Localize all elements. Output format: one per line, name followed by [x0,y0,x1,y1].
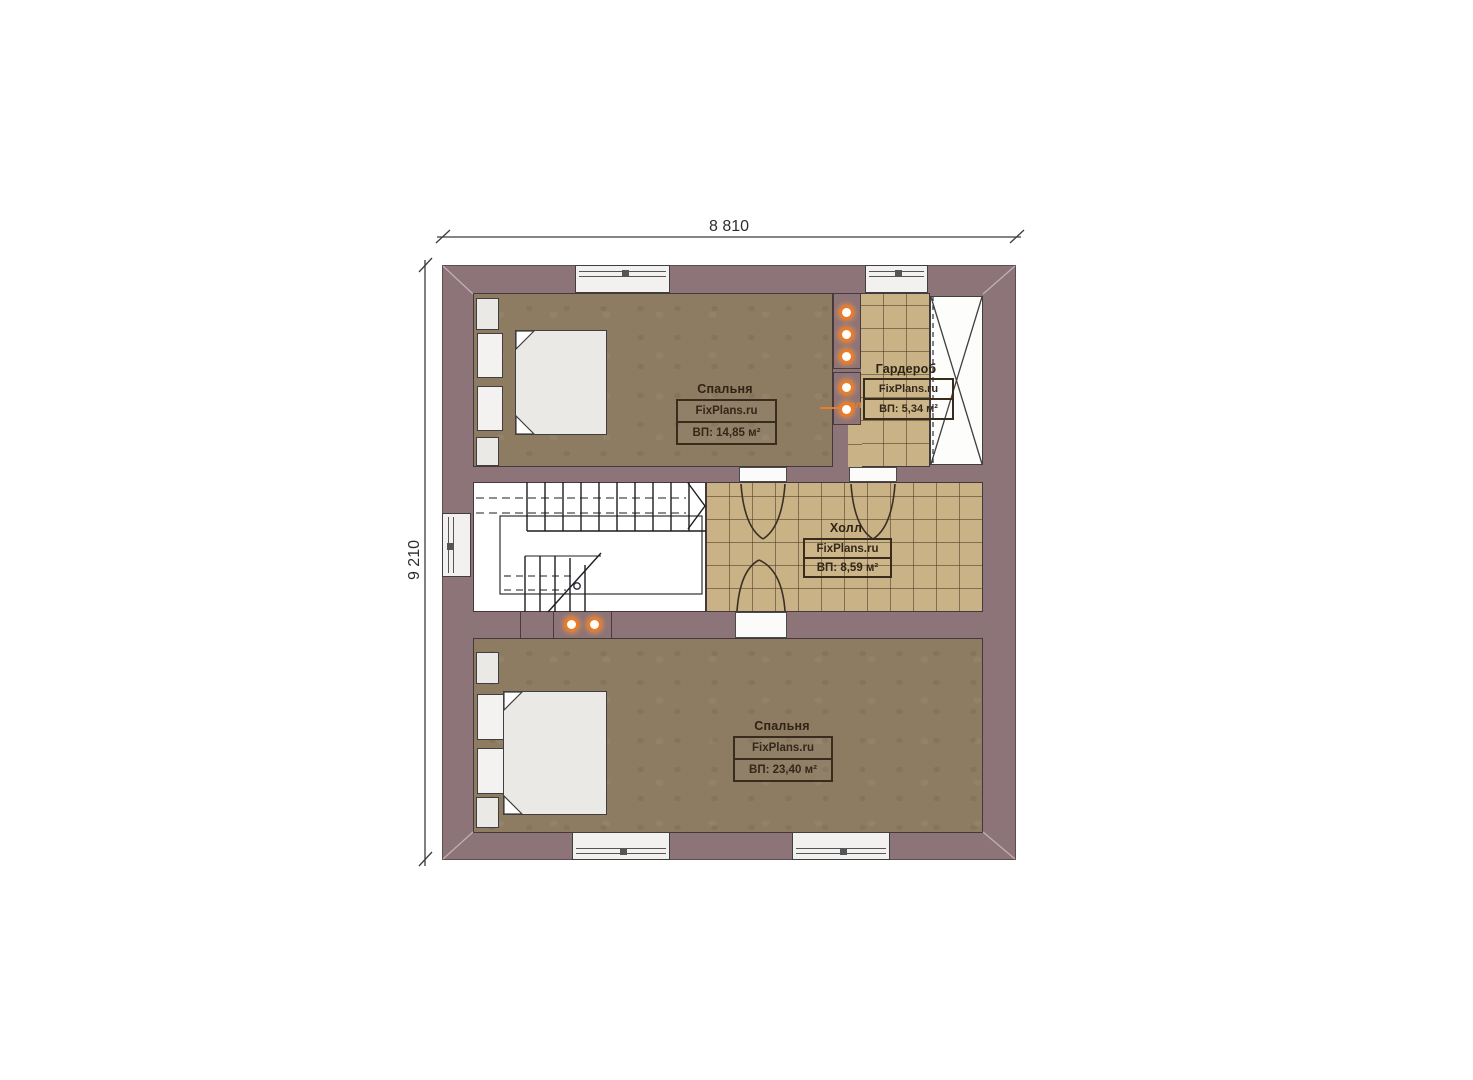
stairwell-floor [473,482,706,612]
brand-label: FixPlans.ru [865,380,952,400]
door-threshold [735,612,787,638]
electrical-marker: эл [850,400,862,411]
room-name-bedroom-top: Спальня [697,382,752,396]
nightstand [476,652,499,684]
pillow [477,333,503,378]
area-label: ВП: 5,34 м² [865,400,952,418]
bed [515,330,607,435]
room-name-hall: Холл [830,521,862,535]
area-label: ВП: 8,59 м² [805,559,890,576]
pillow [477,694,504,740]
window [442,513,471,577]
wall-joint [520,612,521,638]
vent-circle [839,349,854,364]
room-label-bedroom-bottom: FixPlans.ru ВП: 23,40 м² [733,736,833,782]
vent-circle [587,617,602,632]
window [865,265,928,293]
floor-plan-canvas: 8 810 9 210 эл [0,0,1473,1080]
room-label-wardrobe: FixPlans.ru ВП: 5,34 м² [863,378,954,420]
brand-label: FixPlans.ru [735,738,831,760]
nightstand [476,797,499,828]
window [792,832,890,860]
door-threshold [739,467,787,482]
nightstand [476,437,499,466]
room-wardrobe-floor-patch [848,425,862,467]
door-threshold [849,467,897,482]
dimension-width-label: 8 810 [442,218,1016,236]
brand-label: FixPlans.ru [678,401,775,423]
bed [503,691,607,815]
dimension-height-label: 9 210 [406,530,422,590]
brand-label: FixPlans.ru [805,540,890,559]
room-name-wardrobe: Гардероб [876,362,937,376]
vent-block-middle [553,612,612,638]
nightstand [476,298,499,330]
room-label-bedroom-top: FixPlans.ru ВП: 14,85 м² [676,399,777,445]
window [572,832,670,860]
area-label: ВП: 23,40 м² [735,760,831,780]
vent-circle [839,327,854,342]
electrical-lead-line [820,407,840,409]
window [575,265,670,293]
area-label: ВП: 14,85 м² [678,423,775,443]
pillow [477,386,503,431]
room-label-hall: FixPlans.ru ВП: 8,59 м² [803,538,892,578]
vent-circle [564,617,579,632]
vent-circle [839,380,854,395]
pillow [477,748,504,794]
vent-circle [839,305,854,320]
room-name-bedroom-bottom: Спальня [754,719,809,733]
